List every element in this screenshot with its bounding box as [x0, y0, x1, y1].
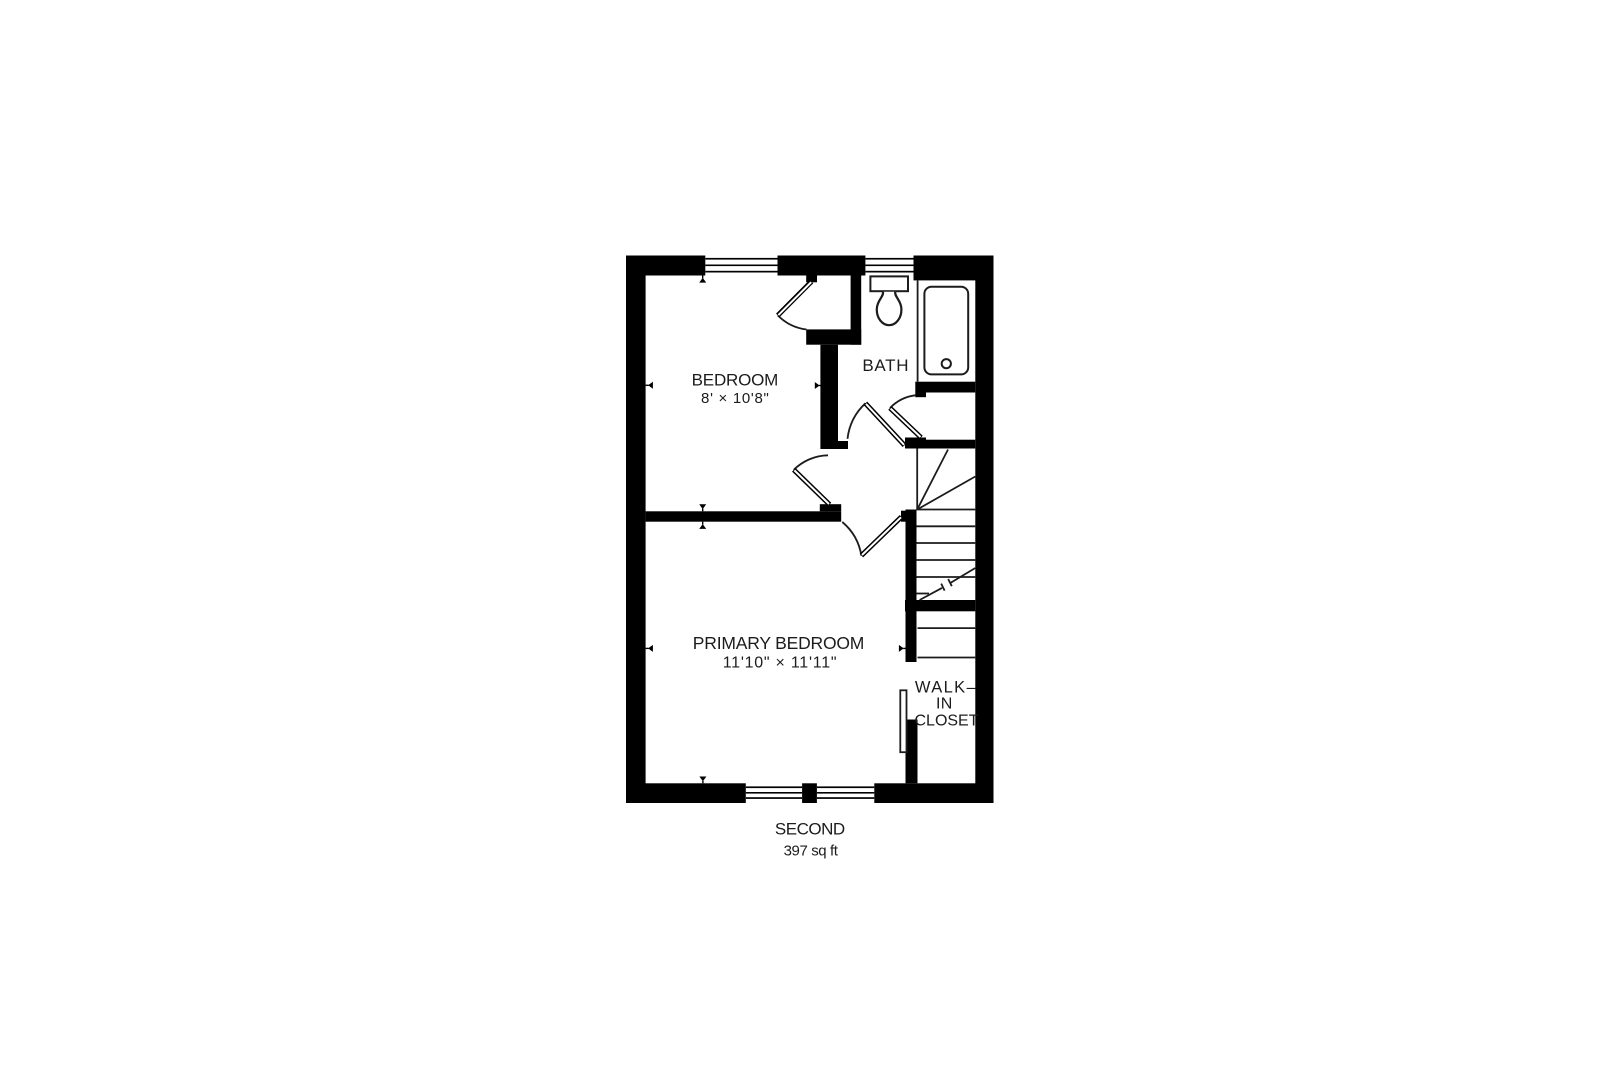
svg-text:IN: IN: [936, 696, 953, 713]
svg-text:PRIMARY BEDROOM: PRIMARY BEDROOM: [693, 633, 864, 653]
svg-text:SECOND: SECOND: [775, 820, 845, 839]
svg-text:8' × 10'8": 8' × 10'8": [701, 390, 770, 407]
svg-text:11'10" × 11'11": 11'10" × 11'11": [723, 655, 838, 672]
svg-text:CLOSET: CLOSET: [914, 713, 978, 730]
svg-text:BEDROOM: BEDROOM: [692, 371, 778, 390]
svg-text:BATH: BATH: [862, 356, 909, 375]
svg-text:397 sq ft: 397 sq ft: [784, 843, 839, 860]
svg-text:WALK–: WALK–: [915, 678, 977, 696]
